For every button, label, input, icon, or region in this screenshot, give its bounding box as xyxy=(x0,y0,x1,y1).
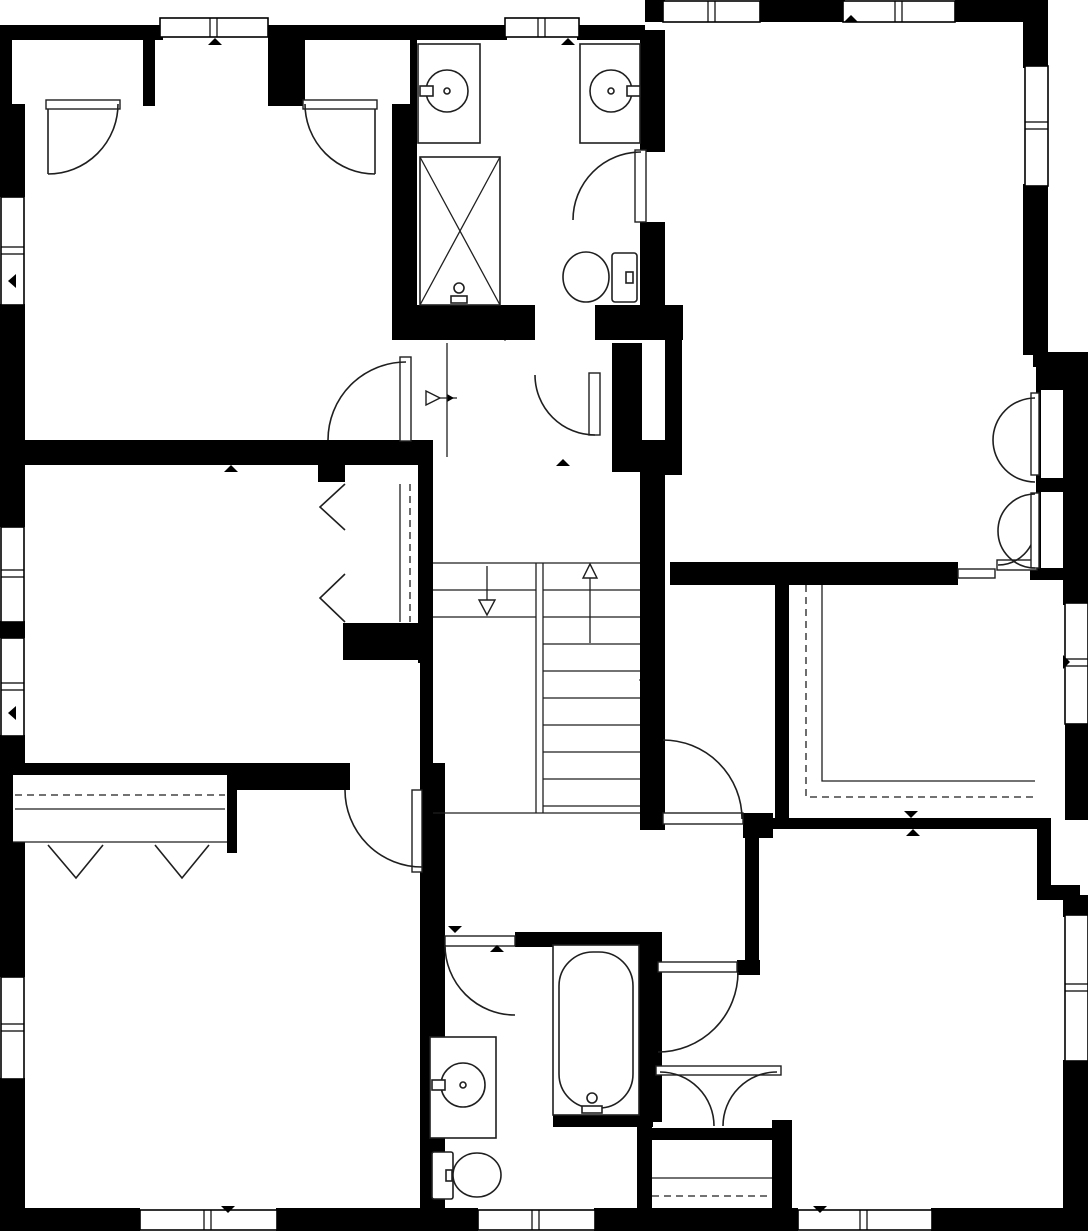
sink-icon xyxy=(418,44,480,143)
doors xyxy=(13,100,1039,1126)
windows xyxy=(1,1,1088,1230)
wall xyxy=(227,775,237,853)
wall xyxy=(737,960,760,975)
door xyxy=(328,357,411,441)
wall xyxy=(772,1120,792,1208)
wall xyxy=(0,1078,25,1208)
window xyxy=(140,1210,277,1230)
wall xyxy=(955,0,1048,22)
wall xyxy=(645,0,665,22)
wall xyxy=(931,1208,1088,1231)
window xyxy=(1,638,24,736)
closet-interior xyxy=(1041,390,1063,478)
wall xyxy=(1023,184,1048,355)
double-closet-doors xyxy=(993,393,1039,568)
window xyxy=(1025,66,1048,186)
wall xyxy=(415,25,507,40)
door xyxy=(663,740,743,824)
wall xyxy=(745,827,759,960)
window xyxy=(663,1,760,22)
sink-icon xyxy=(580,44,640,143)
window xyxy=(1065,915,1088,1061)
bathtub-icon xyxy=(553,945,639,1115)
closet-interiors xyxy=(12,40,1063,1206)
window xyxy=(505,18,579,37)
window xyxy=(1,527,24,622)
floor-plan xyxy=(0,0,1088,1231)
wall xyxy=(0,735,25,977)
wall xyxy=(1037,818,1051,893)
door xyxy=(535,373,600,435)
window xyxy=(798,1210,932,1230)
wall xyxy=(0,1208,140,1231)
shower-icon xyxy=(420,157,500,305)
door xyxy=(573,150,646,222)
wall xyxy=(665,310,682,475)
fixtures xyxy=(418,44,640,1199)
wall xyxy=(0,304,25,527)
floor-plan-drawing xyxy=(0,0,1088,1231)
wall xyxy=(577,25,645,40)
wall xyxy=(318,463,345,482)
closet-door xyxy=(46,100,120,174)
wall xyxy=(268,38,305,106)
double-closet-doors xyxy=(656,1066,781,1126)
window xyxy=(478,1210,595,1230)
wall xyxy=(1063,895,1088,917)
wall xyxy=(640,440,665,830)
closet-interior xyxy=(12,40,143,104)
wall xyxy=(1023,22,1048,68)
wall xyxy=(637,1120,652,1208)
door xyxy=(445,936,515,1015)
wall xyxy=(420,763,445,1208)
wall xyxy=(637,932,662,1122)
wall xyxy=(392,305,535,340)
wall xyxy=(276,1208,478,1231)
toilet-icon xyxy=(432,1152,501,1199)
bifold-doors xyxy=(320,484,345,622)
window xyxy=(1,977,24,1079)
sink-icon xyxy=(430,1037,496,1138)
wall xyxy=(670,562,778,585)
bifold-doors xyxy=(13,842,227,878)
wall xyxy=(420,660,433,770)
wall xyxy=(143,38,155,106)
markers xyxy=(8,15,1070,1213)
wall xyxy=(775,570,789,820)
opening-arrow-icon xyxy=(426,391,457,405)
door xyxy=(658,962,738,1052)
door xyxy=(345,790,422,872)
closet-interior xyxy=(305,40,410,104)
staircase xyxy=(433,563,640,813)
walls xyxy=(0,0,1088,1231)
wall xyxy=(1063,1060,1088,1208)
wall xyxy=(760,0,845,22)
wall xyxy=(640,30,665,152)
wall xyxy=(0,440,433,465)
wall xyxy=(1065,723,1088,820)
closet-interior xyxy=(1041,492,1063,568)
stair-up-arrow-icon xyxy=(583,564,597,643)
closet-door xyxy=(303,100,377,174)
wall xyxy=(0,621,25,638)
wall xyxy=(612,343,642,455)
window xyxy=(1,197,24,305)
wall xyxy=(650,1128,780,1140)
window xyxy=(843,1,955,22)
toilet-icon xyxy=(563,252,637,302)
wall xyxy=(747,818,1037,829)
wall xyxy=(343,623,423,660)
window xyxy=(160,18,268,37)
wall xyxy=(640,222,665,312)
wall xyxy=(594,1208,798,1231)
